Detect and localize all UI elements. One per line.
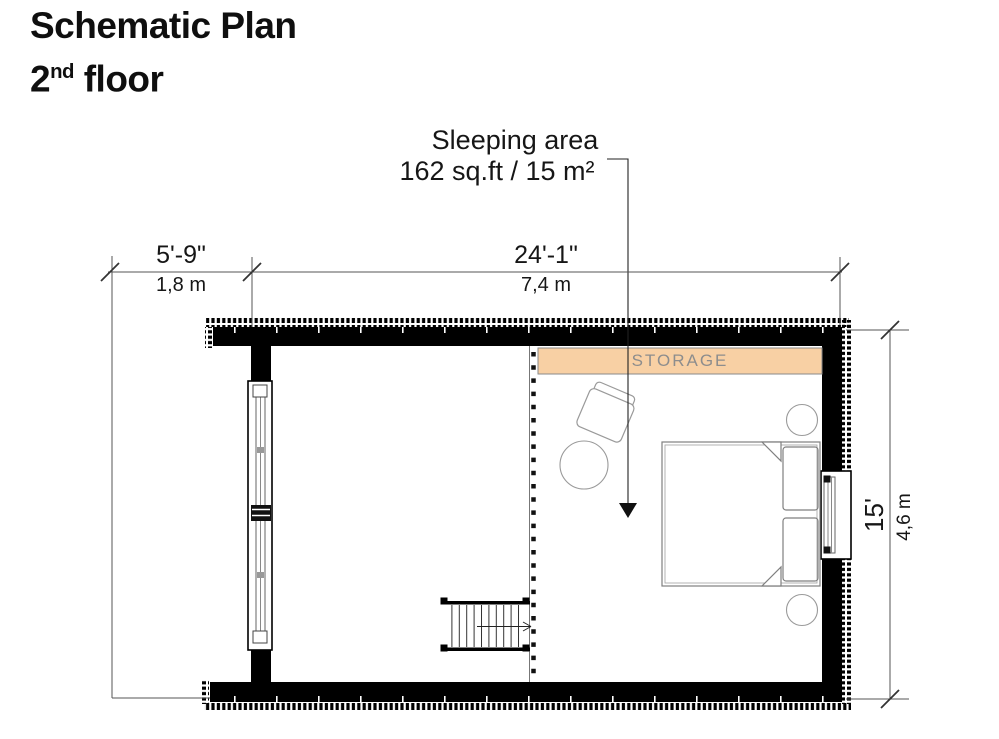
insulation-hatch xyxy=(202,318,851,711)
nightstand-top xyxy=(787,405,818,436)
dim-body-depth-imperial: 15' xyxy=(859,475,889,555)
window-handle xyxy=(251,505,271,521)
wall-left-upper xyxy=(251,346,271,381)
armchair xyxy=(575,380,638,444)
dim-body-width-imperial: 24'-1" xyxy=(476,241,616,270)
dim-deck-width-imperial: 5'-9" xyxy=(111,241,251,270)
pillow-top xyxy=(783,447,818,510)
wall-right-upper xyxy=(822,346,842,472)
storage-label: STORAGE xyxy=(538,348,822,374)
room-annotation-name: Sleeping area xyxy=(365,125,665,155)
nightstand-bottom xyxy=(787,595,818,626)
wall-left-lower xyxy=(251,649,271,682)
right-window xyxy=(821,471,851,559)
blanket-fold-top xyxy=(762,442,781,461)
blanket-fold-bottom xyxy=(762,567,781,586)
bed xyxy=(662,442,820,586)
room-annotation-area: 162 sq.ft / 15 m² xyxy=(337,156,657,186)
left-window xyxy=(248,381,272,650)
stairs xyxy=(441,598,532,652)
dim-deck-width-metric: 1,8 m xyxy=(111,274,251,297)
floor-plan-drawing xyxy=(0,0,999,739)
dim-body-depth-metric: 4,6 m xyxy=(894,472,916,562)
dim-body-width-metric: 7,4 m xyxy=(476,274,616,297)
ordinal-suffix: nd xyxy=(50,61,74,83)
side-table xyxy=(560,441,608,489)
drawing-title-line2: 2nd floor xyxy=(30,49,297,102)
pillow-bottom xyxy=(783,518,818,581)
drawing-title: Schematic Plan 2nd floor xyxy=(30,2,297,102)
wall-right-lower xyxy=(822,558,842,682)
schematic-plan-page: Schematic Plan 2nd floor Sleeping area 1… xyxy=(0,0,999,739)
partition-line xyxy=(530,346,534,682)
drawing-title-line1: Schematic Plan xyxy=(30,2,297,49)
